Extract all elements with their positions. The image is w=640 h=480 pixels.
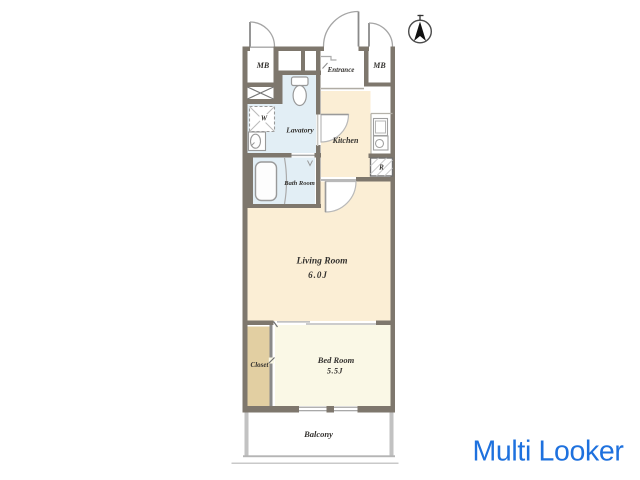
svg-text:MB: MB	[256, 61, 270, 70]
svg-text:Lavatory: Lavatory	[285, 126, 314, 135]
svg-text:Balcony: Balcony	[303, 429, 333, 439]
svg-text:Bath Room: Bath Room	[283, 180, 315, 187]
svg-text:Kitchen: Kitchen	[332, 136, 359, 145]
svg-text:W: W	[261, 115, 268, 123]
svg-text:6.0J: 6.0J	[308, 270, 328, 280]
svg-text:R: R	[378, 164, 384, 172]
svg-text:5.5J: 5.5J	[327, 367, 344, 376]
svg-text:Entrance: Entrance	[327, 66, 355, 74]
svg-text:Living Room: Living Room	[296, 257, 348, 267]
svg-text:Bed Room: Bed Room	[317, 355, 355, 365]
svg-text:Closet: Closet	[251, 361, 270, 369]
svg-text:Multi Looker: Multi Looker	[473, 436, 625, 468]
svg-text:MB: MB	[372, 61, 386, 70]
